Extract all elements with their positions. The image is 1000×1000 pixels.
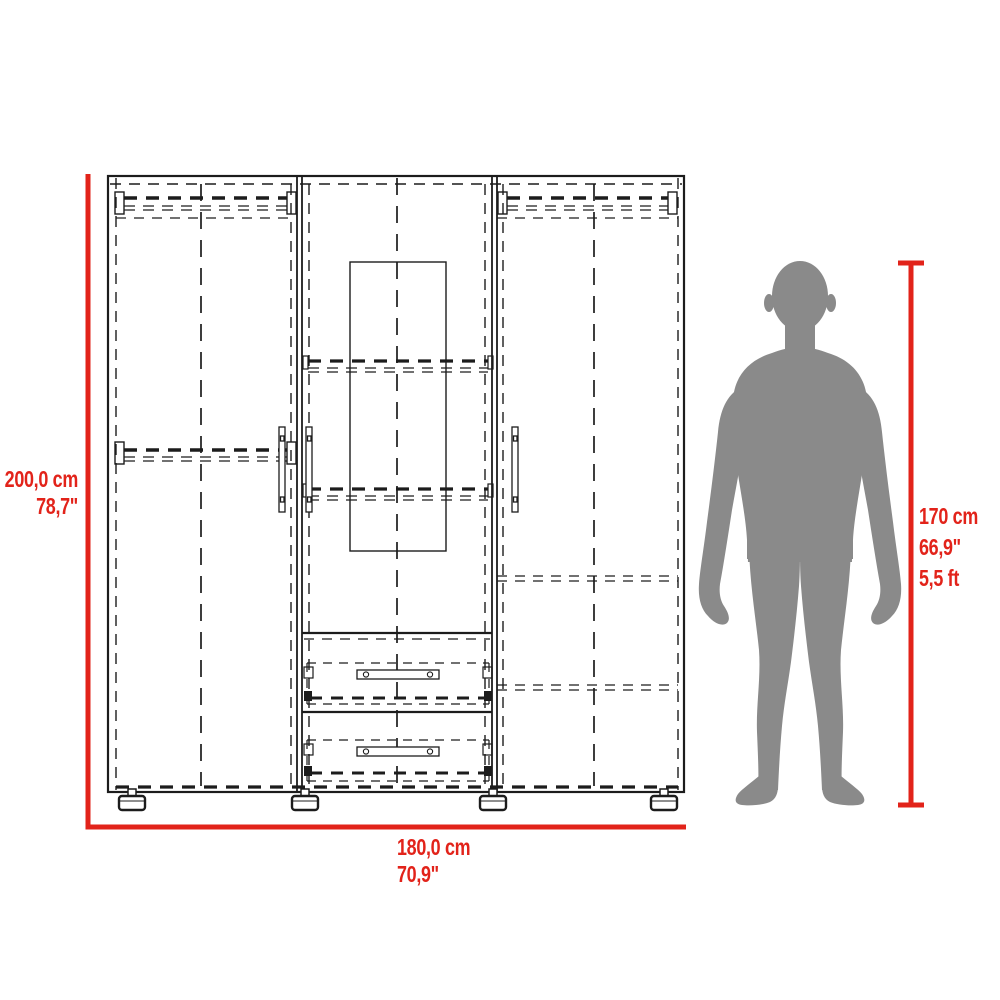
- human-imperial: 66,9": [919, 532, 978, 563]
- hanging-rod-top-left: [115, 192, 296, 218]
- drawer-2: [304, 740, 492, 786]
- silhouette-left-foot: [736, 772, 778, 805]
- height-metric: 200,0 cm: [5, 466, 78, 493]
- silhouette-right-leg: [800, 548, 851, 790]
- human-metric: 170 cm: [919, 501, 978, 532]
- door-handles: [279, 427, 518, 512]
- center-door-handle: [306, 427, 312, 512]
- width-metric: 180,0 cm: [397, 834, 470, 861]
- width-imperial: 70,9": [397, 861, 470, 888]
- height-imperial: 78,7": [5, 493, 78, 520]
- drawer-1-handle: [357, 670, 439, 679]
- left-wall: [297, 176, 302, 792]
- human-feet: 5,5 ft: [919, 563, 978, 594]
- silhouette-torso: [732, 347, 868, 562]
- right-shelves: [497, 576, 678, 690]
- hanging-rod-mid-left: [115, 442, 296, 464]
- silhouette-left-leg: [749, 548, 800, 790]
- mirror: [350, 262, 446, 551]
- wardrobe-outline: [108, 176, 684, 792]
- wardrobe-dimension-diagram: [0, 0, 1000, 1000]
- right-door-handle: [512, 427, 518, 512]
- silhouette-right-arm: [853, 388, 901, 625]
- human-height-label: 170 cm 66,9" 5,5 ft: [919, 501, 978, 594]
- drawer-1: [304, 663, 492, 711]
- wardrobe-drawing: [108, 176, 684, 810]
- center-rod-upper: [303, 356, 493, 372]
- center-rod-lower: [303, 484, 493, 500]
- diagram-canvas: 200,0 cm 78,7" 180,0 cm 70,9" 170 cm 66,…: [0, 0, 1000, 1000]
- human-silhouette: [699, 261, 901, 805]
- silhouette-left-arm: [699, 388, 747, 625]
- height-dimension-label: 200,0 cm 78,7": [5, 466, 78, 520]
- silhouette-right-foot: [822, 772, 864, 805]
- left-door-handle: [279, 427, 285, 512]
- hanging-rod-top-right: [497, 192, 678, 218]
- width-dimension-label: 180,0 cm 70,9": [397, 834, 470, 888]
- drawer-2-handle: [357, 747, 439, 756]
